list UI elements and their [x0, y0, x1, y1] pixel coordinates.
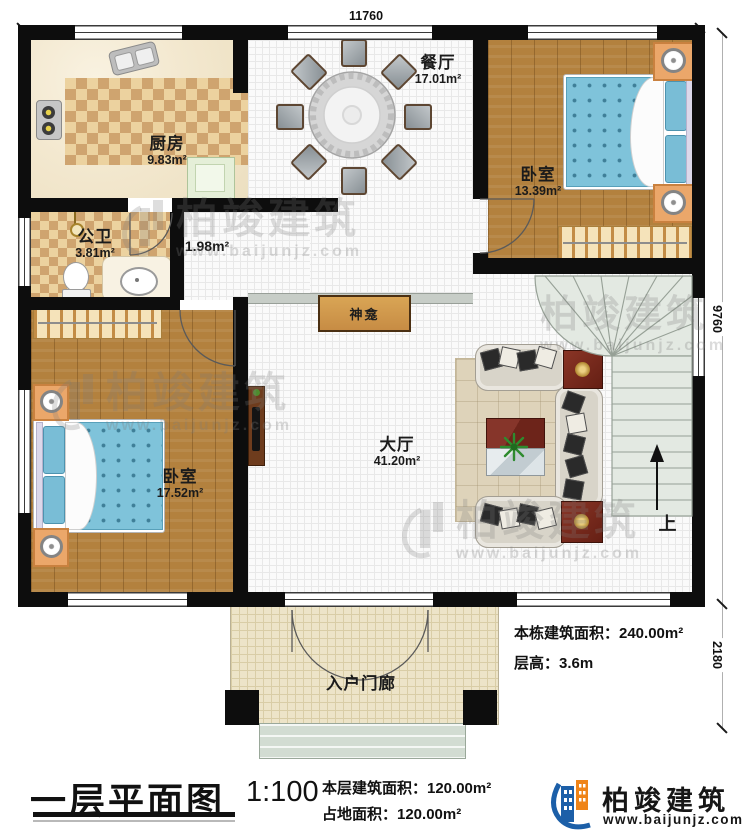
- entry-door-frame: [285, 592, 433, 607]
- pillow: [665, 135, 687, 183]
- dining-chair: [404, 104, 432, 130]
- dim-top: 11760: [346, 9, 386, 23]
- window: [528, 25, 657, 40]
- toilet: [62, 262, 89, 300]
- stairs-up-label: 上: [659, 514, 678, 534]
- window: [18, 218, 31, 286]
- dim-line-right: [722, 33, 723, 728]
- kitchen-cabinet: [187, 157, 235, 200]
- coffee-table: [486, 418, 545, 450]
- nightstand: [653, 42, 694, 81]
- sofa-top: [475, 344, 567, 391]
- bath-label: 公卫 3.81m²: [75, 228, 115, 260]
- washbasin-counter: [102, 256, 172, 302]
- window: [75, 25, 182, 40]
- porch-label: 入户门廊: [326, 675, 396, 693]
- sofa-bottom: [475, 496, 567, 548]
- coffee-table-glass: [486, 448, 545, 476]
- wardrobe-right: [558, 226, 692, 259]
- land-area-note: 占地面积：120.00m²: [322, 803, 461, 824]
- plan-scale: 1:100: [246, 776, 319, 809]
- shrine-label: 神龛: [349, 304, 379, 323]
- bed-left: [33, 419, 165, 533]
- bedroom-left-label: 卧室 17.52m²: [157, 468, 204, 500]
- floor-height-note: 层高：3.6m: [514, 652, 593, 673]
- tv-cabinet: [248, 386, 265, 466]
- pillow: [665, 81, 687, 131]
- dining-label: 餐厅 17.01m²: [415, 54, 462, 86]
- porch-column: [225, 690, 259, 725]
- sofa-right: [555, 386, 603, 508]
- floor-area-note: 本层建筑面积：120.00m²: [322, 777, 491, 798]
- hallway-floor: [184, 212, 310, 300]
- side-table: [561, 501, 603, 543]
- porch-floor: [230, 605, 499, 725]
- kitchen-stove: [36, 100, 62, 140]
- window: [517, 592, 670, 607]
- pillow: [43, 476, 65, 524]
- window: [692, 298, 705, 376]
- nightstand: [33, 384, 69, 421]
- hall-label: 大厅 41.20m²: [374, 436, 421, 468]
- window: [18, 390, 31, 513]
- nightstand: [653, 184, 694, 223]
- company-logo-icon: [545, 774, 597, 830]
- company-logo-url: www.baijunjz.com: [603, 812, 744, 827]
- pillow: [43, 426, 65, 474]
- window: [288, 25, 432, 40]
- porch-steps: [259, 723, 466, 759]
- building-area-note: 本栋建筑面积：240.00m²: [514, 622, 683, 643]
- nightstand: [33, 528, 69, 567]
- kitchen-label: 厨房 9.83m²: [147, 135, 187, 167]
- floor-plan-page: 神龛: [0, 0, 750, 840]
- shrine-cabinet: 神龛: [318, 295, 411, 332]
- window: [68, 592, 187, 607]
- dining-chair: [341, 39, 367, 67]
- headboard: [36, 422, 43, 530]
- dining-chair: [341, 167, 367, 195]
- porch-column: [463, 690, 497, 725]
- bed-right: [563, 74, 693, 190]
- dining-chair: [276, 104, 304, 130]
- wardrobe-left: [33, 306, 162, 339]
- hallway-area-label: 1.98m²: [185, 239, 229, 255]
- side-table: [563, 350, 603, 389]
- dim-right-upper: 9760: [710, 302, 724, 336]
- dim-right-lower: 2180: [710, 638, 724, 672]
- bedroom-right-label: 卧室 13.39m²: [515, 166, 562, 198]
